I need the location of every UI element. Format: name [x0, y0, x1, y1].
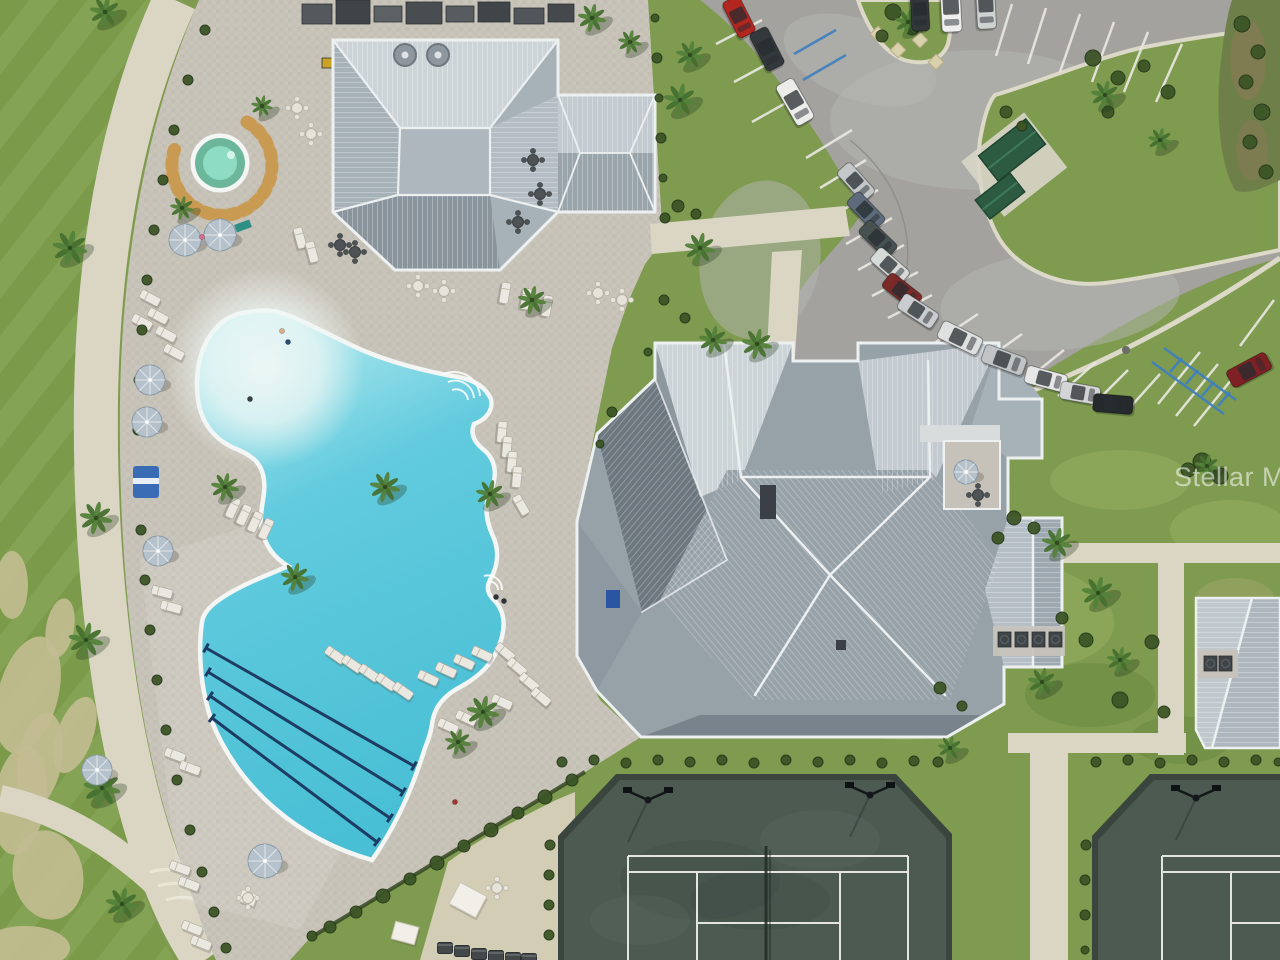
umbrella-pole [218, 233, 222, 237]
patio-chair [537, 200, 542, 205]
shrub [350, 906, 362, 918]
palm-crown [223, 485, 227, 489]
ac-unit [1032, 632, 1045, 647]
pavilion-center-panel [400, 128, 490, 195]
patio-chair [236, 895, 241, 900]
palm-crown [948, 746, 952, 750]
shrub [512, 807, 524, 819]
shrub [557, 757, 567, 767]
person [501, 598, 506, 603]
patio-chair [628, 297, 633, 302]
rooftop-unit [446, 6, 474, 22]
aerial-photo-page: { "watermark": { "text": "Stellar MLS" }… [0, 0, 1280, 960]
shrub [152, 675, 162, 685]
shrub [717, 755, 727, 765]
shrub [1081, 840, 1091, 850]
patio-chair [294, 114, 299, 119]
cupola-cap [435, 52, 442, 59]
shrub [659, 174, 667, 182]
shrub [430, 856, 444, 870]
patio-chair [294, 96, 299, 101]
shrub [1081, 946, 1089, 954]
palm-crown [481, 710, 485, 714]
shrub [221, 943, 231, 953]
shrub [1079, 633, 1093, 647]
shrub [607, 407, 617, 417]
shrub [137, 325, 147, 335]
palm-crown [1103, 93, 1107, 97]
dark-lounger [522, 954, 537, 960]
shrub [183, 75, 193, 85]
table-top [492, 883, 503, 894]
car-glass [913, 2, 928, 16]
palm-crown [711, 338, 715, 342]
ac-unit [998, 632, 1011, 647]
shrub [934, 682, 946, 694]
roof-vent [760, 485, 776, 519]
car-glass [1070, 385, 1086, 401]
dark-lounger-body [472, 949, 487, 960]
car-glass [942, 0, 959, 15]
patio-chair [537, 182, 542, 187]
table-top [350, 247, 361, 258]
court-stain [690, 870, 830, 930]
car-rear-glass [944, 19, 959, 26]
table-top [528, 155, 539, 166]
palm-crown [100, 786, 104, 790]
palm-crown [1118, 658, 1122, 662]
patio-chair [346, 242, 351, 247]
palm-crown [1096, 591, 1100, 595]
dark-lounger [438, 943, 453, 954]
car-glass [1104, 396, 1119, 411]
shrub [1085, 50, 1101, 66]
shrub [484, 823, 498, 837]
umbrella-pole [964, 470, 968, 474]
car-rear-glass [1121, 398, 1128, 411]
patio-chair [415, 292, 420, 297]
spa-step [227, 151, 235, 159]
patio-chair [308, 122, 313, 127]
patio-chair [361, 249, 366, 254]
umbrella-pole [148, 378, 152, 382]
shrub [1187, 755, 1197, 765]
roof-parapet [920, 425, 1000, 442]
person [247, 396, 252, 401]
rooftop-unit [406, 2, 442, 24]
car [1092, 393, 1136, 417]
person [452, 799, 457, 804]
shrub [307, 931, 317, 941]
aerial-photo: Stellar MLS [0, 0, 1280, 960]
patio-chair [966, 492, 971, 497]
table-top [973, 490, 984, 501]
patio-chair [424, 283, 429, 288]
patio-chair [595, 281, 600, 286]
shrub [644, 348, 652, 356]
patio-chair [328, 242, 333, 247]
shrub [685, 757, 695, 767]
person [285, 339, 290, 344]
person [199, 234, 204, 239]
shrub [1000, 106, 1012, 118]
court-stain [760, 810, 880, 870]
shrub [885, 4, 901, 20]
shrub [458, 840, 470, 852]
palm-crown [1055, 541, 1059, 545]
table-top [413, 281, 424, 292]
shrub [158, 175, 168, 185]
court-stain [590, 895, 690, 945]
shrub [877, 758, 887, 768]
table-top [439, 286, 450, 297]
casita-building [1196, 598, 1280, 748]
shrub [1138, 60, 1150, 72]
palm-crown [383, 485, 387, 489]
shrub [1161, 85, 1175, 99]
shrub [749, 758, 759, 768]
patio-chair [450, 288, 455, 293]
patio-chair [586, 290, 591, 295]
shrub [1028, 522, 1040, 534]
patio-chair [406, 283, 411, 288]
path-between-courts [1030, 746, 1068, 960]
shrub [691, 209, 701, 219]
patio-chair [619, 306, 624, 311]
umbrella-pole [95, 768, 99, 772]
palm-crown [628, 40, 632, 44]
patio-chair [528, 191, 533, 196]
lounger-body [512, 466, 523, 488]
shrub [566, 774, 578, 786]
patio-chair [610, 297, 615, 302]
shrub [140, 575, 150, 585]
rooftop-unit [336, 0, 370, 24]
patio-chair [521, 157, 526, 162]
patio-chair [303, 105, 308, 110]
table-top [513, 217, 524, 228]
patio-chair [530, 148, 535, 153]
shrub [545, 840, 555, 850]
shrub [680, 313, 690, 323]
palm-crown [293, 575, 297, 579]
ac-unit [1219, 656, 1232, 671]
patio-chair [337, 251, 342, 256]
palm-crown [180, 206, 184, 210]
palm-crown [456, 740, 460, 744]
shrub [161, 725, 171, 735]
patio-chair [515, 210, 520, 215]
patio-chair [595, 299, 600, 304]
shrub [1251, 755, 1261, 765]
patio-chair [352, 258, 357, 263]
patio-chair [506, 219, 511, 224]
patio-chair [515, 228, 520, 233]
blue-towel-stripe [133, 478, 159, 484]
shrub [1017, 121, 1027, 131]
ac-unit [1015, 632, 1028, 647]
shrub [1056, 612, 1068, 624]
shrub [1259, 165, 1273, 179]
dark-lounger [489, 951, 504, 960]
shrub [652, 53, 662, 63]
shrub [1091, 757, 1101, 767]
palm-crown [84, 638, 88, 642]
patio-chair [524, 219, 529, 224]
patio-chair [530, 166, 535, 171]
roof-face-south [641, 715, 980, 737]
patio-chair [975, 501, 980, 506]
sidewalk-east-vertical [1158, 543, 1184, 755]
beach-entry [165, 268, 365, 468]
dark-lounger [506, 953, 521, 960]
palm-crown [755, 342, 759, 346]
shrub [169, 125, 179, 135]
shrub [653, 755, 663, 765]
ac-unit [1204, 656, 1217, 671]
patio-chair [539, 157, 544, 162]
table-top [243, 893, 254, 904]
shrub [672, 200, 684, 212]
patio-chair [441, 279, 446, 284]
shrub [149, 225, 159, 235]
shrub [1254, 104, 1270, 120]
patio-chair [619, 288, 624, 293]
lawn-light-patch [1050, 450, 1190, 510]
shrub [200, 25, 210, 35]
car-glass [978, 0, 994, 13]
palm-crown [688, 53, 692, 57]
patio-chair [604, 290, 609, 295]
palm-crown [103, 10, 107, 14]
table-top [617, 295, 628, 306]
umbrella-pole [156, 549, 160, 553]
shrub [324, 921, 336, 933]
shrub [1123, 755, 1133, 765]
shrub [544, 900, 554, 910]
shrub [142, 275, 152, 285]
shrub [145, 625, 155, 635]
shrub [933, 757, 943, 767]
shrub [1080, 875, 1090, 885]
shrub [1234, 16, 1250, 32]
rooftop-unit [478, 2, 510, 22]
palm-crown [260, 104, 264, 108]
shrub [1243, 135, 1257, 149]
umbrella-pole [145, 420, 149, 424]
dark-lounger [472, 949, 487, 960]
table-top [535, 189, 546, 200]
cupola-cap [402, 52, 409, 59]
shrub [845, 755, 855, 765]
shrub [376, 889, 390, 903]
patio-chair [503, 885, 508, 890]
patio-chair [317, 131, 322, 136]
patio-chair [352, 240, 357, 245]
patio-chair [299, 131, 304, 136]
shrub [1145, 635, 1159, 649]
car [938, 0, 962, 35]
shrub [136, 525, 146, 535]
person [493, 594, 498, 599]
shrub [876, 30, 888, 42]
shrub [404, 873, 416, 885]
table-top [292, 103, 303, 114]
shrub [1239, 75, 1253, 89]
palm-crown [68, 246, 72, 250]
person [279, 328, 284, 333]
umbrella-pole [263, 859, 267, 863]
shrub [1112, 692, 1128, 708]
patio-chair [432, 288, 437, 293]
dark-lounger-body [506, 953, 521, 960]
patio-chair [245, 886, 250, 891]
car-rear-glass [914, 19, 927, 25]
rooftop-unit [302, 4, 332, 24]
patio-chair [254, 895, 259, 900]
shrub [660, 213, 670, 223]
shrub [909, 756, 919, 766]
shrub [781, 755, 791, 765]
shrub [172, 775, 182, 785]
palm-crown [94, 516, 98, 520]
dark-lounger-body [455, 946, 470, 957]
patio-chair [546, 191, 551, 196]
shrub [544, 870, 554, 880]
rooftop-unit [374, 6, 402, 22]
umbrella-pole [183, 238, 187, 242]
car [973, 0, 996, 32]
blue-cart [606, 590, 620, 608]
shrub [544, 930, 554, 940]
shrub [1181, 463, 1195, 477]
clubhouse-roof [577, 343, 1065, 737]
table-top [593, 288, 604, 299]
palm-crown [1205, 464, 1209, 468]
dark-lounger [455, 946, 470, 957]
dark-lounger-body [438, 943, 453, 954]
shrub [1274, 758, 1280, 766]
palm-crown [698, 246, 702, 250]
shrub [1111, 71, 1125, 85]
shrub [209, 907, 219, 917]
palm-crown [590, 16, 594, 20]
shrub [1080, 910, 1090, 920]
patio-chair [494, 894, 499, 899]
car [908, 0, 930, 34]
palm-crown [120, 902, 124, 906]
palm-crown [1040, 680, 1044, 684]
spa-water [203, 146, 237, 180]
roof-vent [836, 640, 846, 650]
patio-chair [343, 249, 348, 254]
shrub [1155, 758, 1165, 768]
palm-crown [530, 298, 534, 302]
lounge-chair [509, 466, 522, 490]
patio-chair [975, 483, 980, 488]
rooftop-unit [548, 4, 574, 22]
palm-crown [1158, 138, 1162, 142]
shrub [589, 755, 599, 765]
shrub [655, 94, 663, 102]
table-top [306, 129, 317, 140]
shrub [1007, 511, 1021, 525]
ac-unit [1049, 632, 1062, 647]
patio-chair [337, 233, 342, 238]
patio-chair [984, 492, 989, 497]
patio-chair [485, 885, 490, 890]
shrub [538, 790, 552, 804]
shrub [651, 14, 659, 22]
table-top [335, 240, 346, 251]
patio-chair [245, 904, 250, 909]
rooftop-unit [514, 8, 544, 24]
patio-chair [494, 876, 499, 881]
palm-crown [678, 98, 682, 102]
patio-chair [415, 274, 420, 279]
palm-crown [488, 492, 492, 496]
shrub [197, 867, 207, 877]
shrub [1158, 706, 1170, 718]
car-rear-glass [980, 16, 994, 23]
shrub [621, 758, 631, 768]
shrub [185, 825, 195, 835]
shrub [656, 133, 666, 143]
patio-chair [308, 140, 313, 145]
dark-lounger-body [489, 951, 504, 960]
shrub [992, 532, 1004, 544]
shrub [1219, 757, 1229, 767]
aerial-scene [0, 0, 1280, 960]
shrub [1251, 45, 1265, 59]
shrub [659, 295, 669, 305]
manhole-cover [1122, 346, 1130, 354]
patio-chair [285, 105, 290, 110]
shrub [957, 701, 967, 711]
shrub [813, 757, 823, 767]
shrub [596, 440, 604, 448]
patio-chair [441, 297, 446, 302]
